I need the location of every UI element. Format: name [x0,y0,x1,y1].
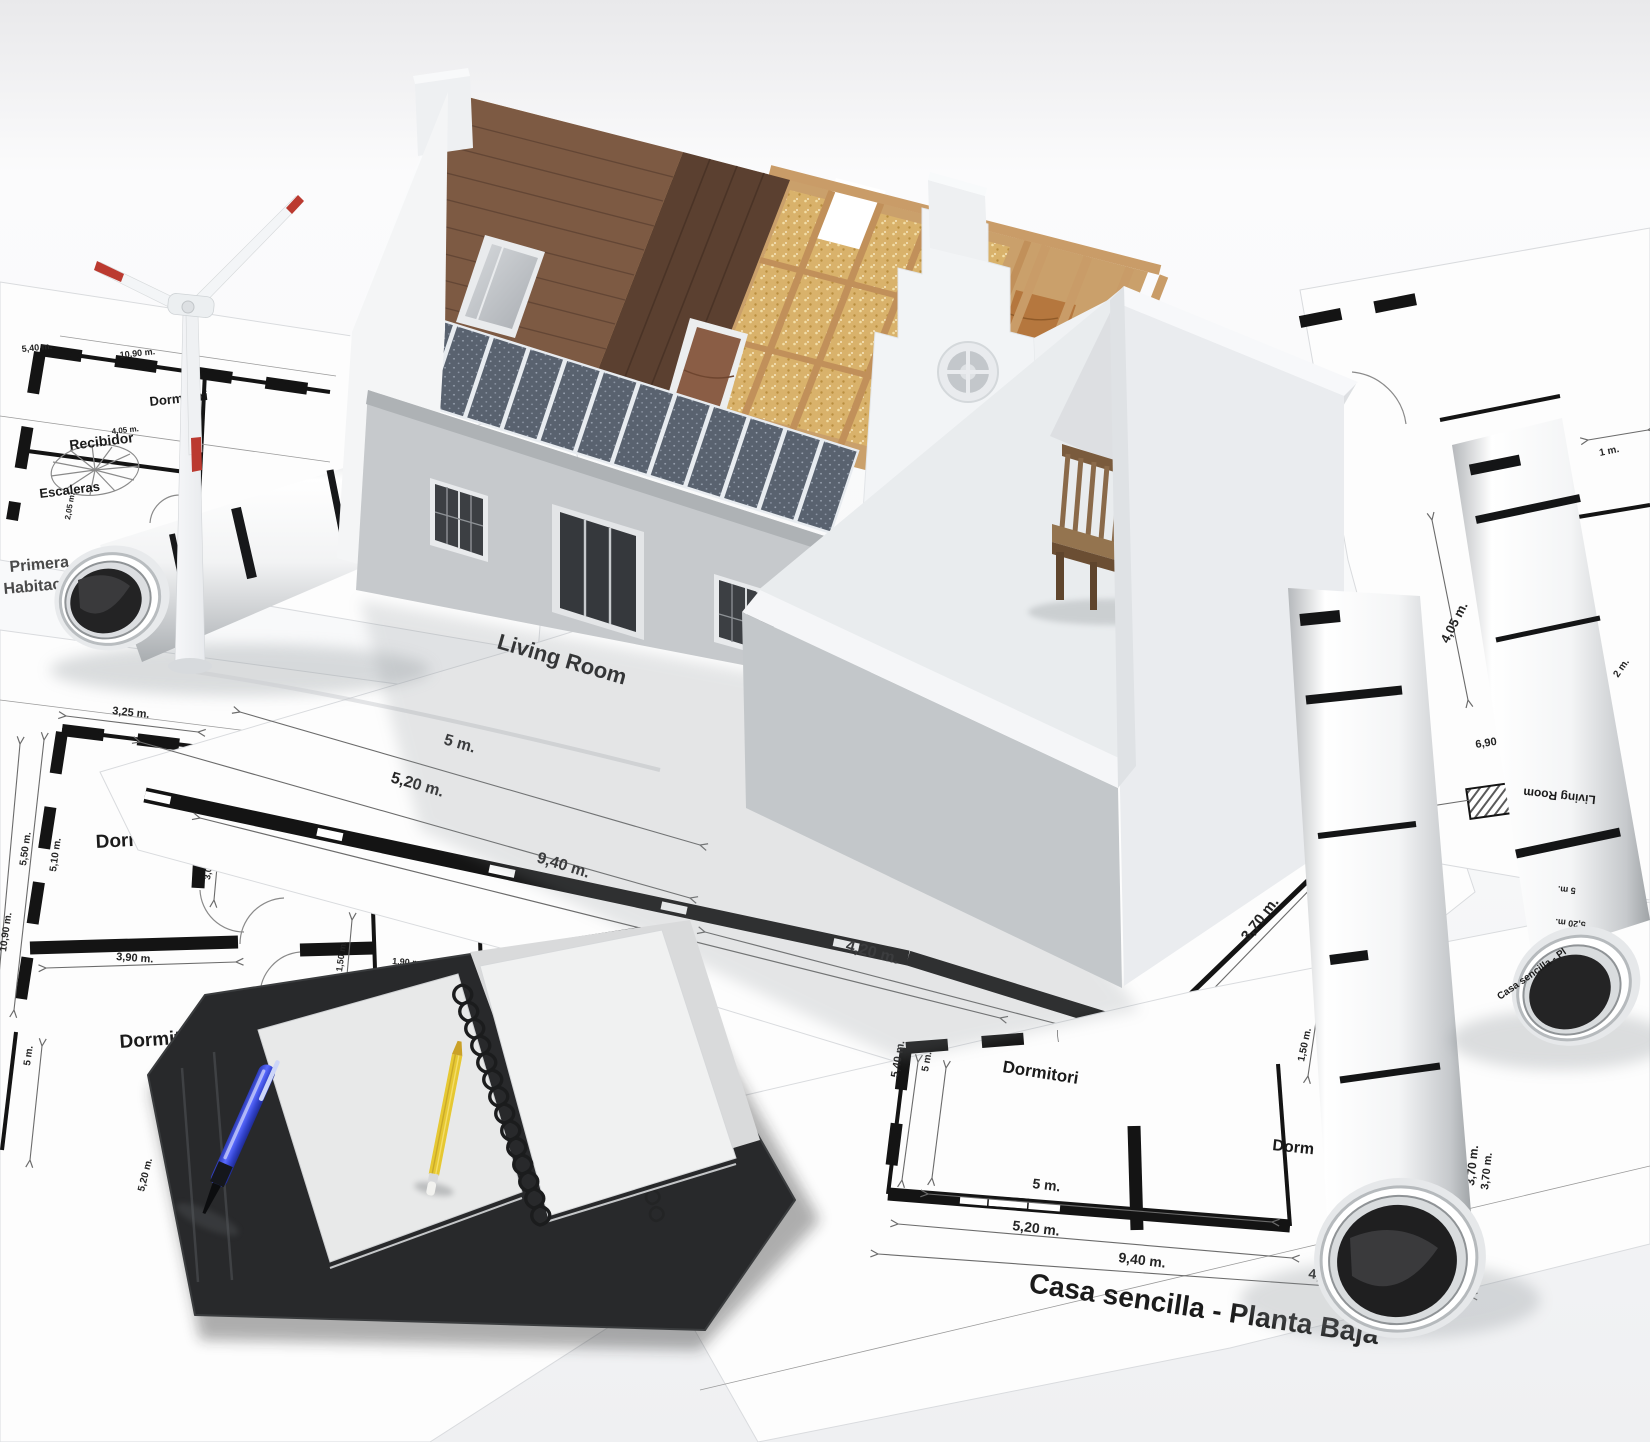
turbine-hub [182,301,194,313]
architectural-render-scene: Recibidor Escaleras Dormitori 5,40 m. 10… [0,0,1650,1442]
dim-label: 5 m. [1032,1175,1062,1194]
round-window [938,342,998,402]
scene-canvas: Recibidor Escaleras Dormitori 5,40 m. 10… [0,0,1650,1442]
dim-label: 5 m. [1557,884,1576,896]
